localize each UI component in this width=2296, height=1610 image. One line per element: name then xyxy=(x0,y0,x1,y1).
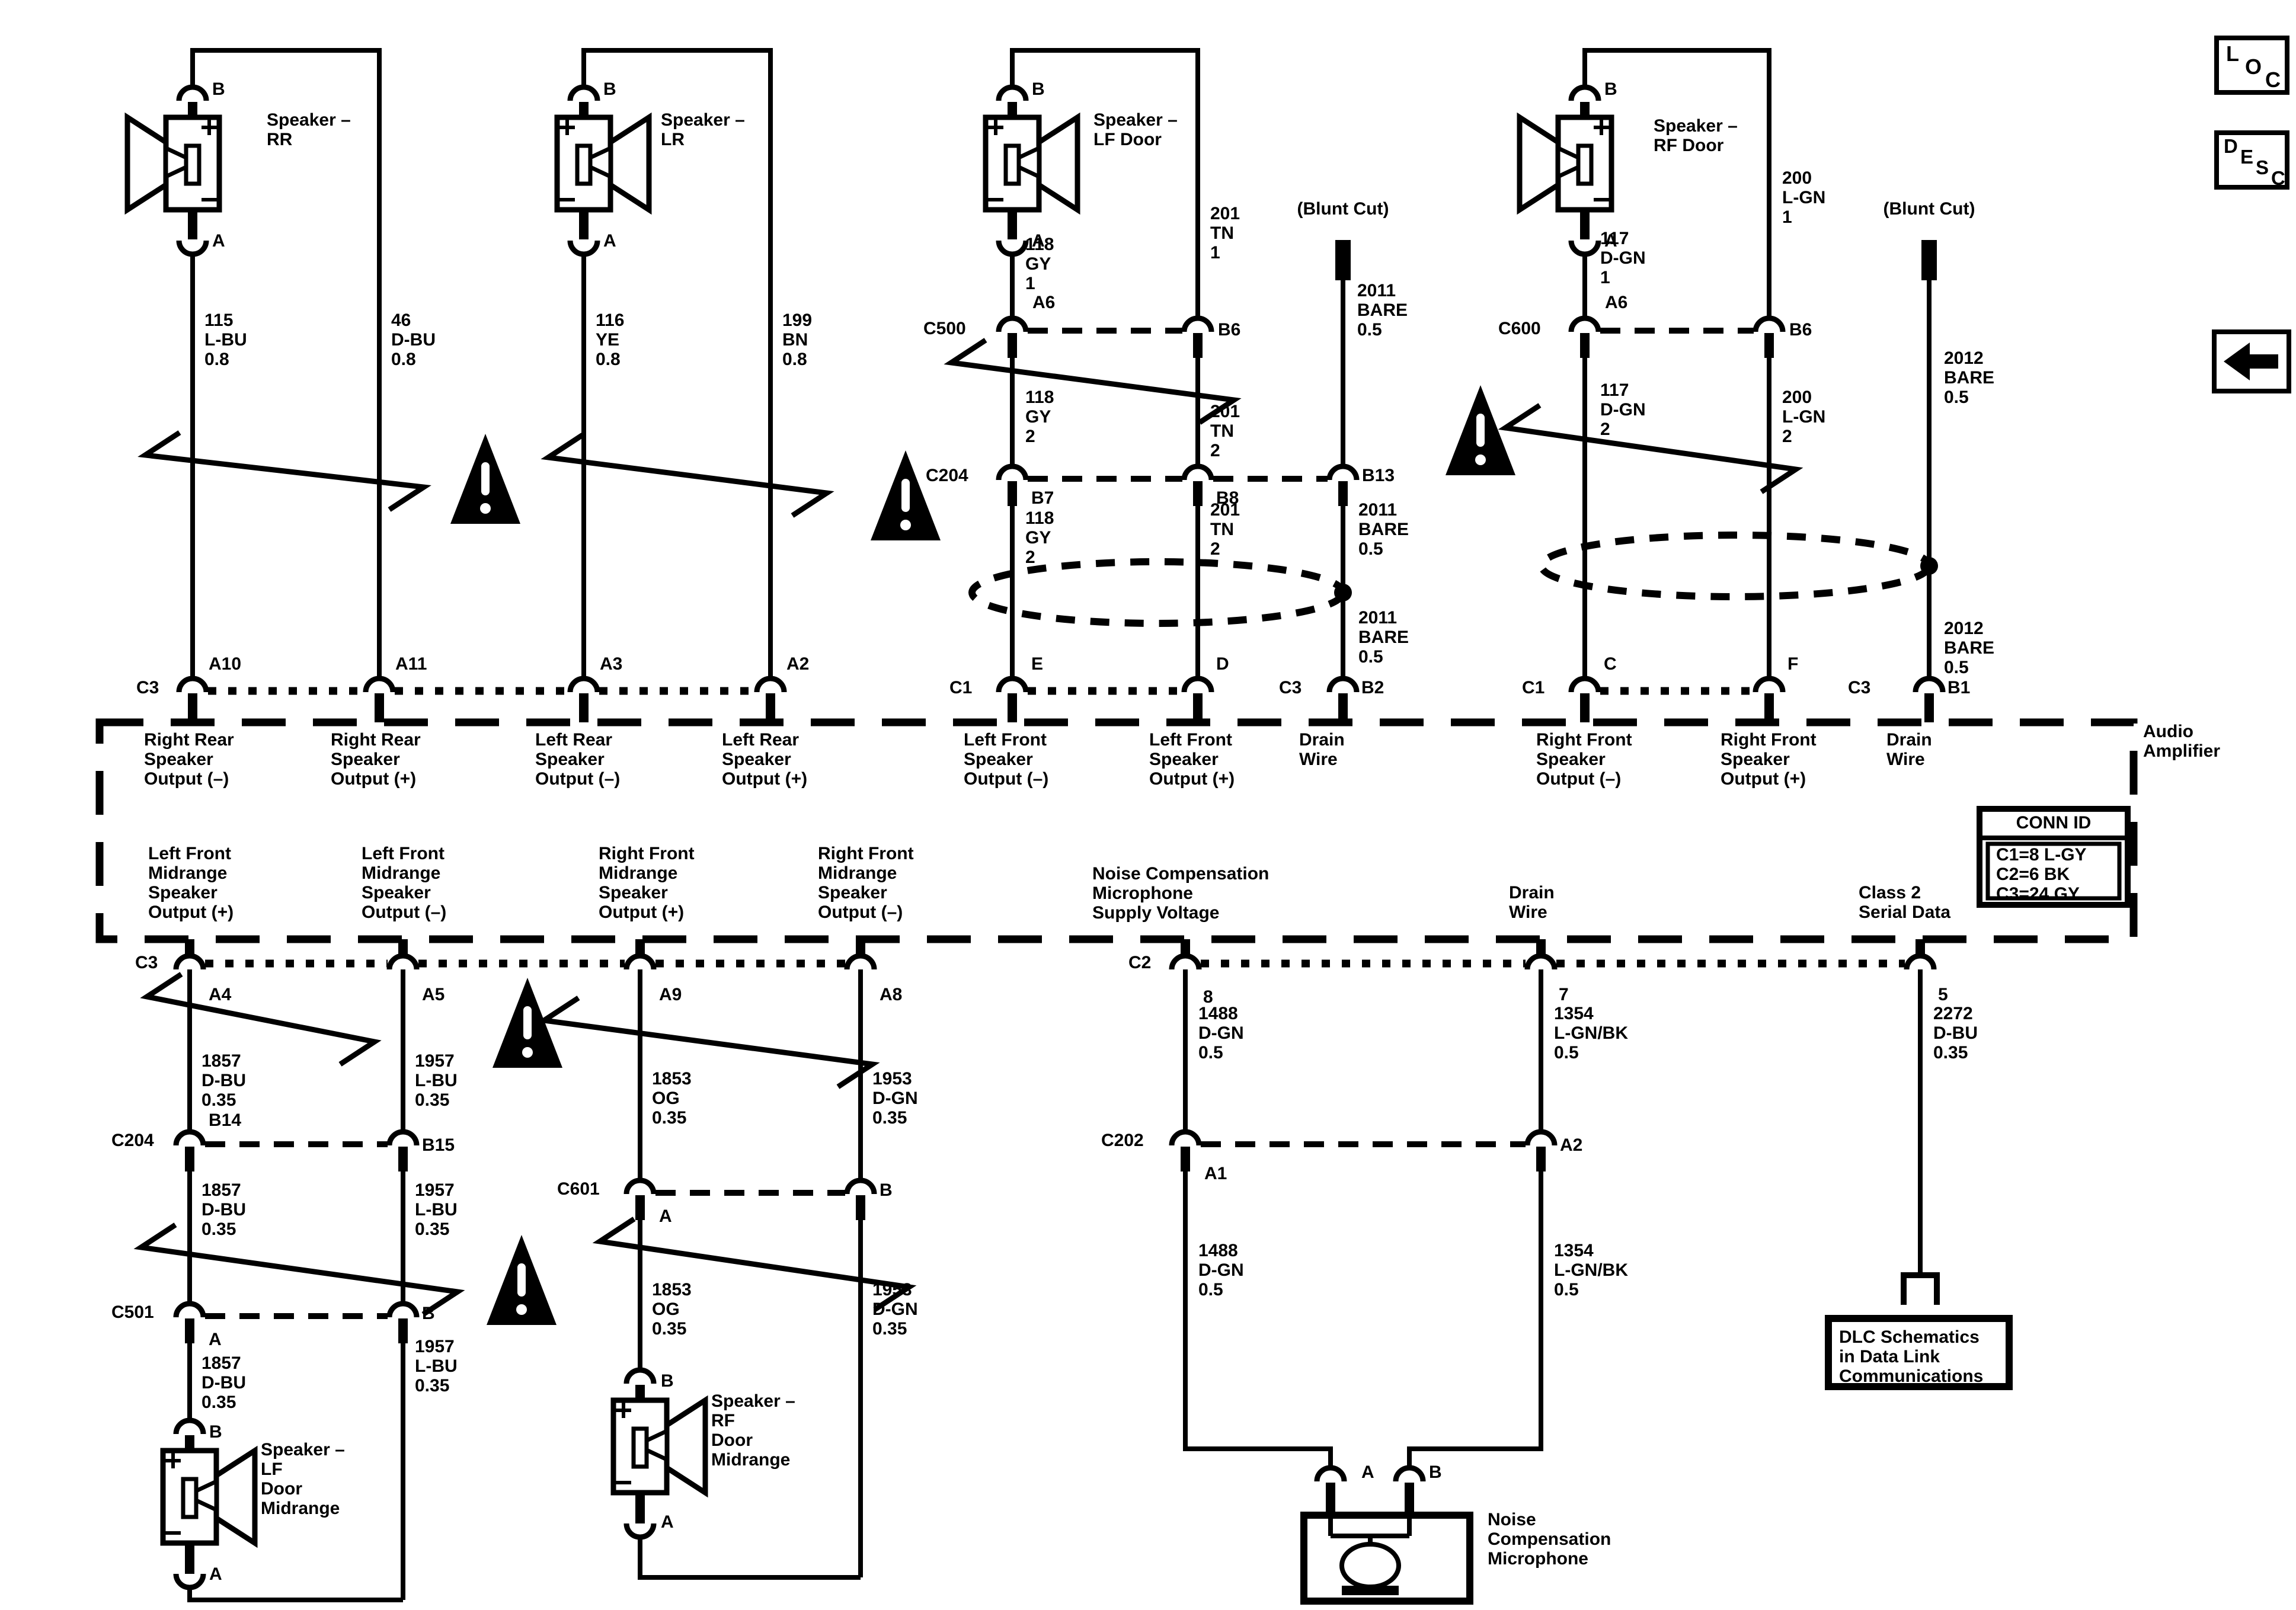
loc-button[interactable]: L O C xyxy=(2214,36,2289,95)
amp-output-rfmid-neg-label: Right Front Midrange Speaker Output (–) xyxy=(818,844,914,922)
speaker-lr-label: Speaker – LR xyxy=(661,110,745,149)
amp-pin-b1-label: B1 xyxy=(1948,678,1970,697)
amp-noise-mic-supply-label: Noise Compensation Microphone Supply Vol… xyxy=(1092,864,1269,923)
amp-output-lf-pos-label: Left Front Speaker Output (+) xyxy=(1149,730,1235,789)
wire-label-1957-b: 1957 L-BU 0.35 xyxy=(415,1180,458,1239)
connector-c601-label: C601 xyxy=(557,1179,600,1199)
wire-label-201-tn-2a: 201 TN 2 xyxy=(1210,402,1240,460)
wire-label-117-dgn-1: 117 D-GN 1 xyxy=(1600,229,1646,287)
speaker-lf-door-label: Speaker – LF Door xyxy=(1093,110,1178,149)
wire-label-1857-b: 1857 D-BU 0.35 xyxy=(202,1180,246,1239)
blunt-cut-right-label: (Blunt Cut) xyxy=(1840,199,2018,219)
connector-c204-pin-b7-label: B7 xyxy=(1031,488,1054,508)
amp-output-rr-pos-label: Right Rear Speaker Output (+) xyxy=(331,730,421,789)
wire-label-1488-a: 1488 D-GN 0.5 xyxy=(1198,1004,1244,1062)
wire-label-2012-bare-low: 2012 BARE 0.5 xyxy=(1944,619,1994,677)
connector-c202-label: C202 xyxy=(1101,1131,1144,1150)
wire-label-2012-bare-top: 2012 BARE 0.5 xyxy=(1944,348,1994,407)
wire-label-2011-bare-top: 2011 BARE 0.5 xyxy=(1357,281,1408,340)
wiring-diagram-page: BSpeaker – RRABSpeaker – LRABSpeaker – L… xyxy=(0,0,2296,1610)
connector-c600-pin-b6-label: B6 xyxy=(1789,320,1812,340)
connector-c204-pin-b13-label: B13 xyxy=(1362,466,1395,485)
amp-pin-a11-label: A11 xyxy=(395,654,427,674)
connector-c500-pin-b6-label: B6 xyxy=(1218,320,1240,340)
junction-dots xyxy=(1334,557,1938,601)
speaker-rfmid-icon xyxy=(613,1400,705,1493)
speaker-rf-door-icon xyxy=(1520,117,1611,210)
amp-pin-a3-label: A3 xyxy=(600,654,622,674)
dlc-box-label: DLC Schematics in Data Link Communicatio… xyxy=(1839,1327,1983,1386)
connector-c500-pin-a6-label: A6 xyxy=(1032,293,1055,312)
loc-letter: O xyxy=(2245,55,2262,79)
connector-c1-label-rf: C1 xyxy=(1522,678,1544,697)
amp-output-lfmid-neg-label: Left Front Midrange Speaker Output (–) xyxy=(362,844,446,922)
connector-c501-pin-b-label: B xyxy=(422,1304,435,1323)
speaker-rf-door-label: Speaker – RF Door xyxy=(1654,116,1738,155)
mic-pin-b-label: B xyxy=(1429,1462,1442,1482)
desc-letter: S xyxy=(2256,156,2269,179)
amp-output-rr-neg-label: Right Rear Speaker Output (–) xyxy=(144,730,234,789)
amp-pin-d-label: D xyxy=(1216,654,1229,674)
conn-id-rows: C1=8 L-GY C2=6 BK C3=24 GY xyxy=(1996,845,2087,904)
wire-label-117-dgn-2: 117 D-GN 2 xyxy=(1600,380,1646,439)
left-arrow-icon xyxy=(2217,334,2287,389)
connector-c501-label: C501 xyxy=(111,1302,154,1322)
connector-dashed-lines xyxy=(205,331,1754,1316)
connector-c3-label-drain-left: C3 xyxy=(1279,678,1302,697)
amp-output-rf-neg-label: Right Front Speaker Output (–) xyxy=(1536,730,1632,789)
connector-c204-pin-b14-label: B14 xyxy=(209,1110,241,1130)
connector-c204-label: C204 xyxy=(926,466,968,485)
wire-label-1957-c: 1957 L-BU 0.35 xyxy=(415,1337,458,1395)
speaker-lf-door-icon xyxy=(986,117,1077,210)
connector-c500-label: C500 xyxy=(923,319,966,338)
speaker-lr-pin-a-label: A xyxy=(603,231,616,251)
amp-pin-a10-label: A10 xyxy=(209,654,241,674)
wire-label-200-lgn-2: 200 L-GN 2 xyxy=(1782,388,1825,446)
wire-label-201-tn-1: 201 TN 1 xyxy=(1210,204,1240,263)
amp-pin-a4-label: A4 xyxy=(209,985,231,1004)
back-button[interactable] xyxy=(2212,329,2291,393)
amp-pin-7-label: 7 xyxy=(1559,985,1569,1004)
amp-drain-mic-label: Drain Wire xyxy=(1509,883,1555,922)
loc-letter: L xyxy=(2226,41,2239,66)
amp-pin-b2-label: B2 xyxy=(1361,678,1384,697)
speaker-lfmid-pin-b-label: B xyxy=(209,1422,222,1442)
wire-label-115-lbu: 115 L-BU 0.8 xyxy=(204,311,247,369)
connector-c1-label-lf: C1 xyxy=(949,678,972,697)
wire-label-1354-a: 1354 L-GN/BK 0.5 xyxy=(1554,1004,1628,1062)
amp-output-rfmid-pos-label: Right Front Midrange Speaker Output (+) xyxy=(599,844,695,922)
amp-output-lfmid-pos-label: Left Front Midrange Speaker Output (+) xyxy=(148,844,234,922)
speaker-lfmid-icon xyxy=(163,1451,255,1543)
mic-label: Noise Compensation Microphone xyxy=(1488,1510,1611,1569)
amp-output-lr-pos-label: Left Rear Speaker Output (+) xyxy=(722,730,807,789)
speaker-lr-pin-b-label: B xyxy=(603,79,616,99)
wire-label-1953-b: 1953 D-GN 0.35 xyxy=(872,1280,918,1339)
desc-button[interactable]: D E S C xyxy=(2214,130,2289,190)
shield-twist-ellipses xyxy=(972,535,1929,623)
twisted-pair-icons xyxy=(141,340,1796,1314)
speaker-rfmid-pin-b-label: B xyxy=(661,1371,674,1391)
speaker-rr-label: Speaker – RR xyxy=(267,110,351,149)
wire-label-1957-a: 1957 L-BU 0.35 xyxy=(415,1051,458,1110)
wire-label-201-tn-2b: 201 TN 2 xyxy=(1210,500,1240,559)
amp-drain-left-label: Drain Wire xyxy=(1299,730,1345,769)
connector-c204b-label: C204 xyxy=(111,1131,154,1150)
amp-pin-dotted-lines xyxy=(205,691,1905,964)
amp-output-lf-neg-label: Left Front Speaker Output (–) xyxy=(964,730,1048,789)
wire-label-118-gy-2a: 118 GY 2 xyxy=(1025,388,1054,446)
blunt-cut-left-label: (Blunt Cut) xyxy=(1254,199,1432,219)
connector-c3-label-left: C3 xyxy=(136,678,159,697)
speaker-rr-pin-b-label: B xyxy=(212,79,225,99)
connector-c501-pin-a-label: A xyxy=(209,1330,222,1349)
amp-pin-c-label: C xyxy=(1604,654,1617,674)
amp-pin-5-label: 5 xyxy=(1938,985,1948,1004)
speaker-rr-pin-a-label: A xyxy=(212,231,225,251)
connector-c2-label: C2 xyxy=(1128,953,1151,972)
wire-label-2011-bare-mid: 2011 BARE 0.5 xyxy=(1358,500,1409,559)
connector-c601-pin-b-label: B xyxy=(880,1180,893,1200)
wire-label-1857-a: 1857 D-BU 0.35 xyxy=(202,1051,246,1110)
audio-amplifier-label: Audio Amplifier xyxy=(2143,722,2220,761)
amp-class2-label: Class 2 Serial Data xyxy=(1859,883,1950,922)
amp-pin-a8-label: A8 xyxy=(880,985,902,1004)
wire-label-118-gy-2b: 118 GY 2 xyxy=(1025,508,1054,567)
connector-c202-pin-a1-label: A1 xyxy=(1204,1164,1227,1183)
connector-c204-pin-b15-label: B15 xyxy=(422,1135,455,1155)
speaker-rfmid-label: Speaker – RF Door Midrange xyxy=(711,1391,795,1470)
speaker-lfmid-label: Speaker – LF Door Midrange xyxy=(261,1440,345,1518)
connector-c600-label: C600 xyxy=(1498,319,1541,338)
connector-c3-label-drain-right: C3 xyxy=(1848,678,1870,697)
speaker-rr-icon xyxy=(127,117,219,210)
mic-pin-a-label: A xyxy=(1361,1462,1374,1482)
connector-c3-label-bottom: C3 xyxy=(135,953,158,972)
connector-c202-pin-a2-label: A2 xyxy=(1560,1135,1582,1155)
speaker-lr-icon xyxy=(557,117,649,210)
loc-letter: C xyxy=(2265,68,2281,92)
amp-pin-a9-label: A9 xyxy=(659,985,682,1004)
wire-label-1488-b: 1488 D-GN 0.5 xyxy=(1198,1241,1244,1299)
speaker-rf-door-pin-b-label: B xyxy=(1604,79,1617,99)
amp-pin-f-label: F xyxy=(1787,654,1798,674)
wire-label-46-dbu: 46 D-BU 0.8 xyxy=(391,311,436,369)
speaker-lf-door-pin-b-label: B xyxy=(1032,79,1045,99)
amp-pin-a2-label: A2 xyxy=(786,654,809,674)
amp-pin-a5-label: A5 xyxy=(422,985,445,1004)
amp-drain-right-label: Drain Wire xyxy=(1886,730,1932,769)
wire-label-1853-a: 1853 OG 0.35 xyxy=(652,1069,692,1128)
wire-label-1354-b: 1354 L-GN/BK 0.5 xyxy=(1554,1241,1628,1299)
desc-letter: E xyxy=(2240,146,2253,168)
wire-label-1853-b: 1853 OG 0.35 xyxy=(652,1280,692,1339)
desc-letter: C xyxy=(2271,167,2285,190)
amp-output-rf-pos-label: Right Front Speaker Output (+) xyxy=(1721,730,1817,789)
speaker-lfmid-pin-a-label: A xyxy=(209,1564,222,1584)
connector-c601-pin-a-label: A xyxy=(659,1206,672,1226)
connector-c600-pin-a6-label: A6 xyxy=(1605,293,1627,312)
wire-label-1857-c: 1857 D-BU 0.35 xyxy=(202,1353,246,1412)
desc-letter: D xyxy=(2224,135,2238,158)
wire-label-2272: 2272 D-BU 0.35 xyxy=(1933,1004,1978,1062)
conn-id-title: CONN ID xyxy=(1980,813,2128,833)
wire-label-118-gy-1: 118 GY 1 xyxy=(1025,235,1054,293)
speaker-rfmid-pin-a-label: A xyxy=(661,1512,674,1532)
microphone-icon xyxy=(1304,1515,1470,1601)
wire-label-1953-a: 1953 D-GN 0.35 xyxy=(872,1069,918,1128)
wire-label-199-bn: 199 BN 0.8 xyxy=(782,311,812,369)
amp-output-lr-neg-label: Left Rear Speaker Output (–) xyxy=(535,730,620,789)
wire-label-2011-bare-low: 2011 BARE 0.5 xyxy=(1358,608,1409,667)
amp-pin-e-label: E xyxy=(1031,654,1043,674)
wire-label-116-ye: 116 YE 0.8 xyxy=(596,311,624,369)
wire-label-200-lgn-1: 200 L-GN 1 xyxy=(1782,168,1825,227)
